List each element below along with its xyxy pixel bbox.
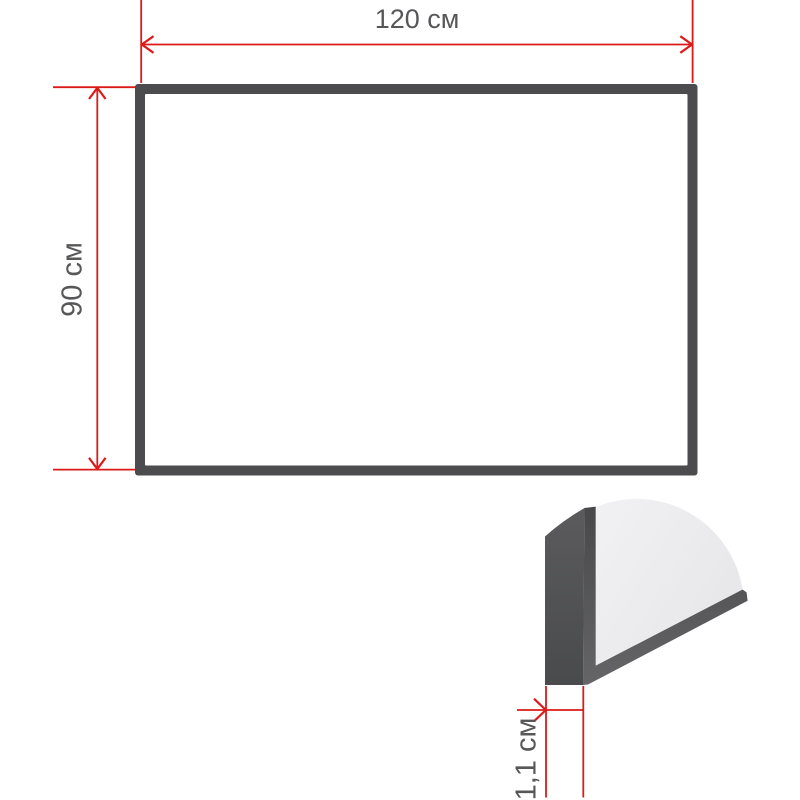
svg-text:90 см: 90 см xyxy=(57,242,89,317)
svg-text:1,1 см: 1,1 см xyxy=(511,718,543,800)
svg-text:120 см: 120 см xyxy=(375,4,460,34)
